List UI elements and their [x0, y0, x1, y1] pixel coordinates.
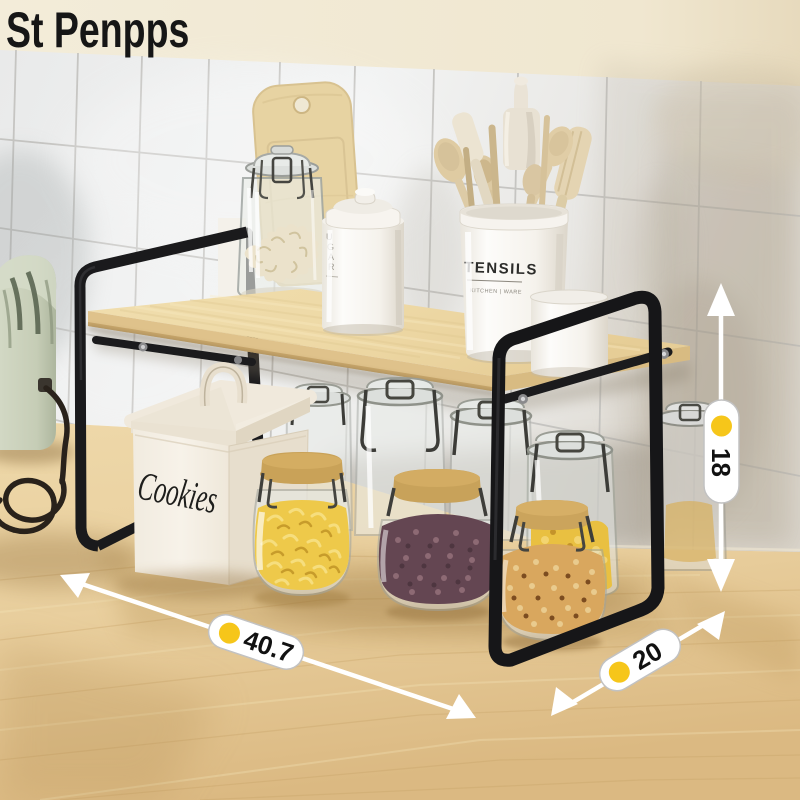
svg-text:St Penpps: St Penpps	[6, 3, 189, 58]
svg-text:TENSILS: TENSILS	[464, 259, 538, 279]
svg-text:18: 18	[706, 448, 736, 477]
